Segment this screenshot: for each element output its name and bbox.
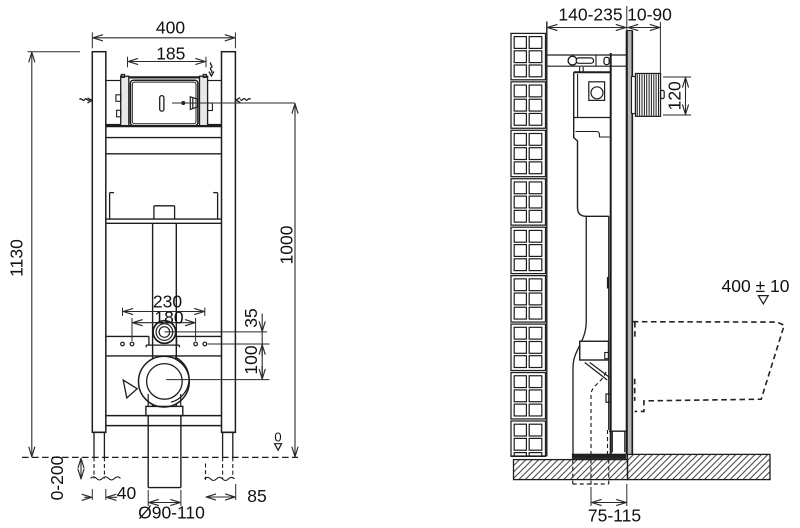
- svg-text:180: 180: [154, 307, 183, 327]
- svg-text:85: 85: [247, 486, 266, 506]
- svg-text:Ø90-110: Ø90-110: [138, 503, 205, 523]
- svg-text:140-235: 140-235: [558, 4, 622, 24]
- svg-text:120: 120: [665, 81, 685, 110]
- svg-text:1130: 1130: [7, 239, 27, 277]
- svg-text:0-200: 0-200: [47, 455, 67, 500]
- svg-text:10-90: 10-90: [627, 4, 672, 24]
- svg-text:35: 35: [241, 308, 261, 327]
- svg-text:75-115: 75-115: [588, 506, 641, 526]
- svg-text:1000: 1000: [277, 225, 297, 264]
- svg-text:400: 400: [156, 17, 185, 37]
- svg-text:40: 40: [117, 483, 137, 503]
- svg-text:0: 0: [274, 430, 281, 445]
- svg-text:100: 100: [241, 345, 261, 374]
- svg-text:400 ± 10: 400 ± 10: [722, 276, 790, 296]
- svg-text:185: 185: [156, 44, 185, 64]
